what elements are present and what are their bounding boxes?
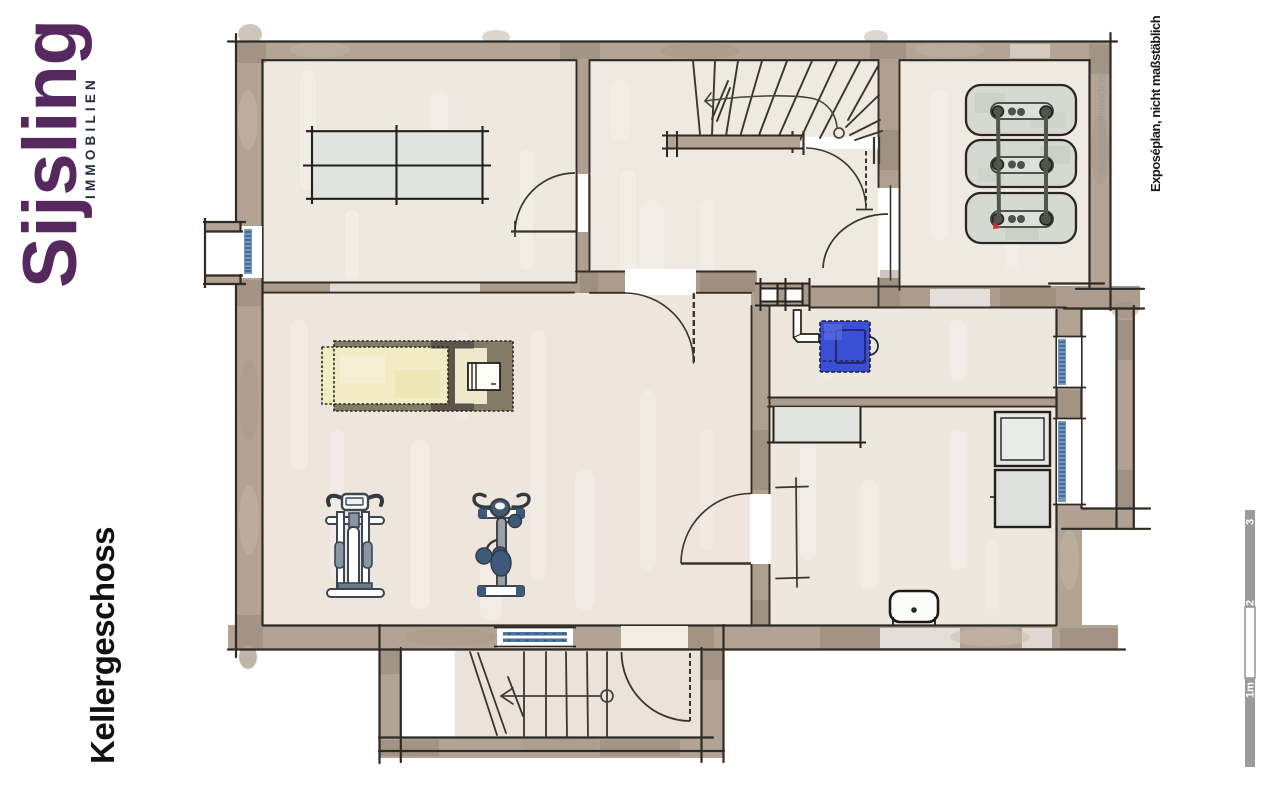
- svg-text:Illustration©ImmoGrafik: Illustration©ImmoGrafik: [1097, 68, 1108, 174]
- svg-text:Sijsling: Sijsling: [8, 19, 93, 288]
- svg-text:IMMOBILIEN: IMMOBILIEN: [83, 76, 98, 199]
- svg-text:Kellergeschoss: Kellergeschoss: [84, 527, 121, 764]
- svg-text:3: 3: [1245, 519, 1257, 525]
- svg-text:Exposéplan, nicht maßstäblich: Exposéplan, nicht maßstäblich: [1148, 15, 1163, 192]
- svg-text:1m: 1m: [1245, 682, 1257, 698]
- svg-text:2: 2: [1245, 600, 1257, 606]
